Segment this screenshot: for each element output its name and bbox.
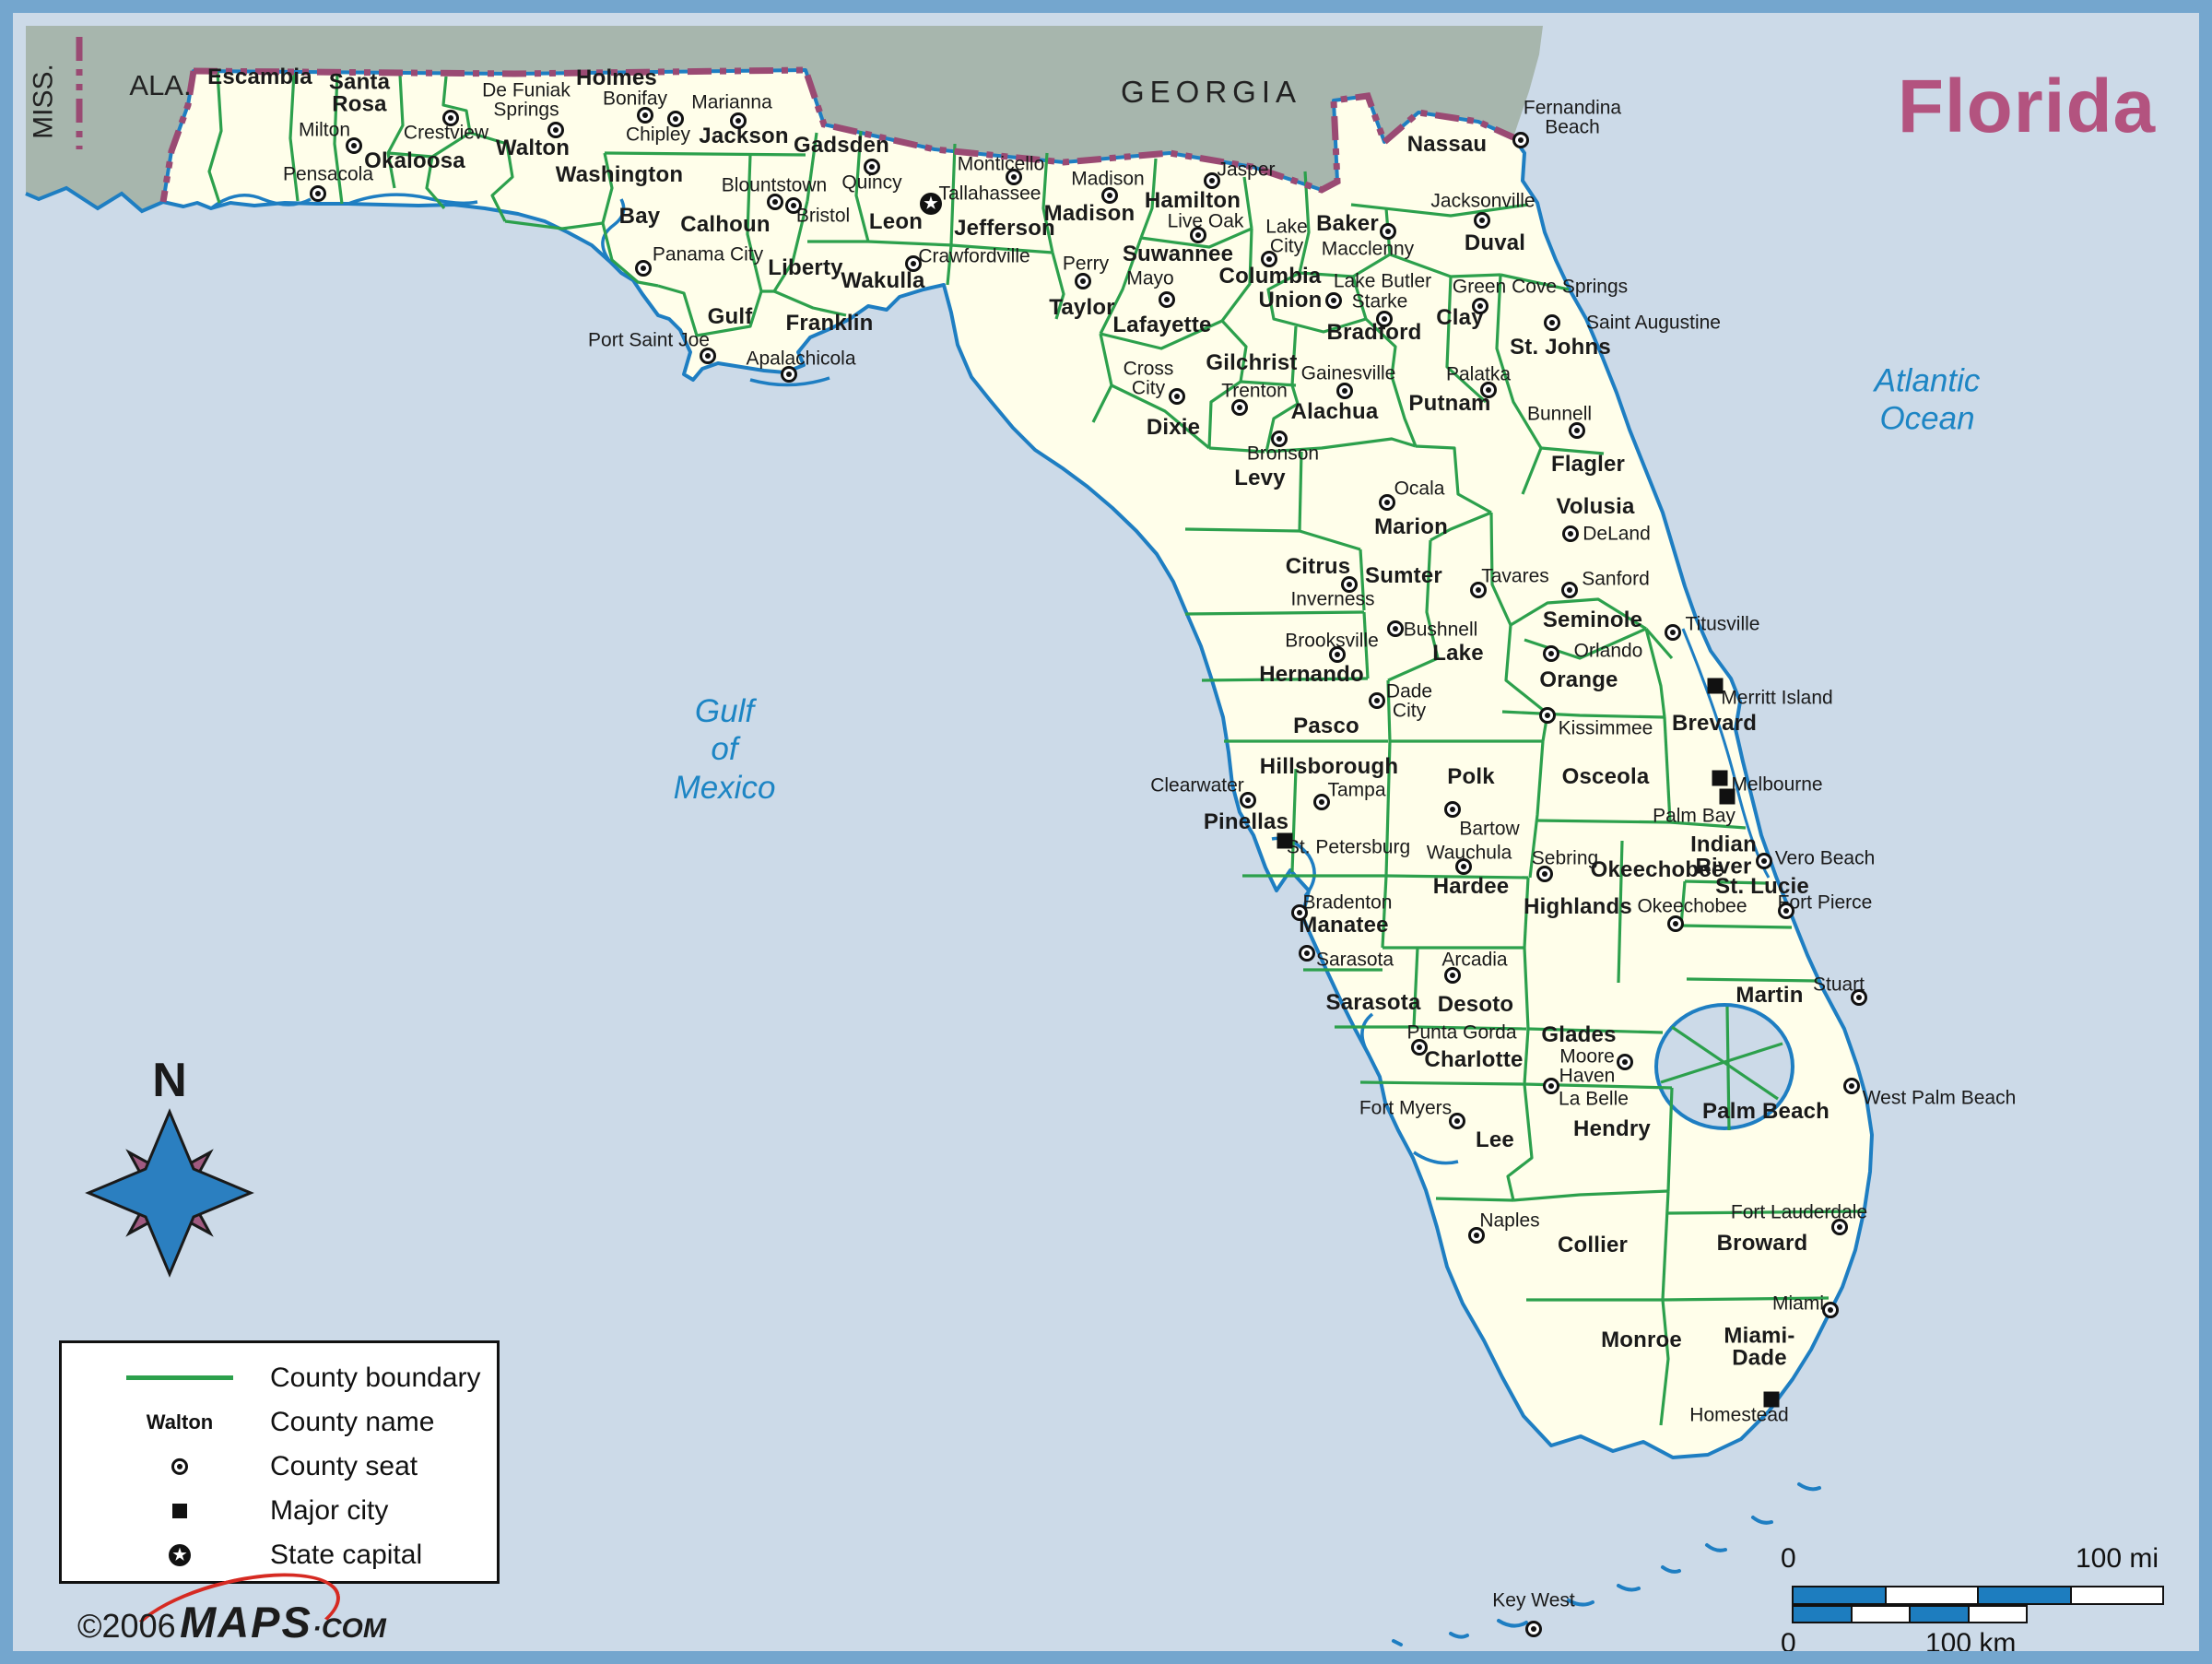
county-label-hillsborough: Hillsborough [1260, 756, 1398, 778]
state-label-georgia: GEORGIA [1121, 77, 1301, 108]
county-label-walton: Walton [496, 137, 570, 159]
city-label-west-palm-beach: West Palm Beach [1863, 1088, 2017, 1107]
city-label-fort-myers: Fort Myers [1359, 1098, 1452, 1117]
copyright-tld: ·COM [312, 1613, 386, 1644]
city-label-trenton: Trenton [1221, 381, 1288, 400]
county-seat-marker-milton [346, 137, 362, 154]
city-label-green-cove-springs: Green Cove Springs [1453, 277, 1628, 296]
county-label-bradford: Bradford [1327, 322, 1422, 344]
county-seat-marker-okeechobee [1667, 915, 1684, 932]
city-label-bonifay: Bonifay [603, 89, 667, 108]
city-label-monticello: Monticello [958, 154, 1045, 173]
county-seat-marker-kissimmee [1539, 707, 1556, 724]
city-label-perry: Perry [1063, 254, 1109, 273]
city-label-tavares: Tavares [1481, 566, 1549, 585]
county-label-indian-river: Indian River [1690, 834, 1757, 879]
county-seat-marker-live-oak [1190, 227, 1206, 243]
county-seat-marker-titusville [1665, 624, 1681, 641]
county-seat-marker-crawfordville [905, 255, 922, 272]
city-label-palatka: Palatka [1446, 364, 1511, 384]
city-label-key-west: Key West [1492, 1590, 1574, 1610]
scale-km-label: 100 km [1925, 1628, 2016, 1659]
city-label-jasper: Jasper [1217, 159, 1275, 179]
county-seat-marker-perry [1075, 273, 1091, 289]
legend-label: County seat [270, 1451, 418, 1482]
county-seat-marker-key-west [1525, 1621, 1542, 1637]
scale-mi-label: 100 mi [2076, 1543, 2159, 1575]
county-seat-marker-fort-lauderdale [1831, 1219, 1848, 1235]
county-label-baker: Baker [1316, 213, 1379, 235]
city-label-ocala: Ocala [1394, 478, 1445, 498]
county-seat-marker-trenton [1231, 399, 1248, 416]
county-seat-marker-vero-beach [1756, 853, 1772, 869]
county-seat-marker-apalachicola [781, 366, 797, 383]
county-label-monroe: Monroe [1601, 1329, 1682, 1351]
county-label-st-johns: St. Johns [1510, 336, 1611, 359]
county-seat-marker-saint-augustine [1544, 314, 1560, 331]
county-seat-icon [171, 1458, 188, 1475]
county-seat-marker-madison [1101, 187, 1118, 204]
city-label-inverness: Inverness [1290, 589, 1374, 608]
major-city-marker-merritt-island [1708, 679, 1724, 694]
county-label-broward: Broward [1717, 1233, 1808, 1255]
county-label-lafayette: Lafayette [1112, 314, 1211, 336]
city-label-live-oak: Live Oak [1168, 211, 1244, 230]
county-label-nassau: Nassau [1407, 134, 1488, 156]
city-label-sanford: Sanford [1582, 569, 1650, 588]
legend-label: State capital [270, 1540, 422, 1571]
city-label-macclenny: Macclenny [1322, 239, 1414, 258]
county-seat-marker-mayo [1159, 291, 1175, 308]
county-label-charlotte: Charlotte [1424, 1049, 1523, 1071]
county-label-gilchrist: Gilchrist [1206, 352, 1297, 374]
county-label-glades: Glades [1541, 1024, 1616, 1046]
city-label-titusville: Titusville [1686, 614, 1760, 633]
county-name-sample: Walton [117, 1410, 242, 1434]
city-label-tampa: Tampa [1327, 780, 1385, 799]
county-seat-marker-moore-haven [1617, 1054, 1633, 1070]
county-label-citrus: Citrus [1286, 556, 1351, 578]
county-label-osceola: Osceola [1562, 766, 1650, 788]
county-seat-marker-clearwater [1240, 792, 1256, 808]
county-seat-marker-jacksonville [1474, 212, 1490, 229]
county-label-collier: Collier [1558, 1234, 1628, 1257]
city-label-melbourne: Melbourne [1731, 774, 1822, 794]
city-label-saint-augustine: Saint Augustine [1586, 313, 1721, 332]
city-label-miami: Miami [1772, 1293, 1824, 1313]
county-seat-marker-blountstown [767, 194, 783, 210]
legend-row-county-boundary: County boundary [62, 1360, 497, 1397]
county-label-volusia: Volusia [1557, 496, 1635, 518]
county-seat-marker-fernandina-beach [1512, 132, 1529, 148]
county-label-martin: Martin [1735, 985, 1803, 1007]
major-city-marker-melbourne [1712, 771, 1728, 786]
county-seat-marker-panama-city [635, 260, 652, 277]
county-label-highlands: Highlands [1524, 896, 1632, 918]
county-seat-marker-sebring [1536, 866, 1553, 882]
florida-keys [1394, 1484, 1819, 1645]
county-seat-marker-cross-city [1169, 388, 1185, 405]
city-label-homestead: Homestead [1689, 1405, 1788, 1424]
city-label-apalachicola: Apalachicola [746, 348, 855, 368]
city-label-blountstown: Blountstown [722, 175, 827, 195]
scale-bar-miles [1792, 1586, 2164, 1605]
city-label-bunnell: Bunnell [1527, 404, 1592, 423]
scale-bar-km [1792, 1605, 2028, 1623]
county-seat-marker-stuart [1851, 989, 1867, 1006]
compass-north-label: N [152, 1053, 187, 1108]
county-seat-marker-ocala [1379, 494, 1395, 511]
city-label-la-belle: La Belle [1559, 1089, 1629, 1108]
major-city-marker-homestead [1764, 1392, 1780, 1408]
county-seat-marker-punta-gorda [1411, 1039, 1428, 1056]
city-label-fernandina-beach: Fernandina Beach [1524, 99, 1621, 138]
compass-rose-star [88, 1112, 251, 1274]
county-seat-marker-fort-myers [1449, 1113, 1465, 1129]
county-label-columbia: Columbia [1219, 266, 1322, 288]
county-label-taylor: Taylor [1049, 297, 1114, 319]
map-title: Florida [1865, 64, 2188, 150]
county-label-calhoun: Calhoun [680, 214, 770, 236]
county-seat-marker-de-funiak-springs [547, 122, 564, 138]
county-label-lake: Lake [1432, 643, 1484, 665]
county-seat-marker-fort-pierce [1778, 903, 1794, 919]
city-label-de-funiak-springs: De Funiak Springs [482, 81, 571, 121]
city-label-marianna: Marianna [691, 92, 772, 112]
county-label-dixie: Dixie [1147, 417, 1200, 439]
county-label-leon: Leon [869, 211, 923, 233]
city-label-pensacola: Pensacola [283, 164, 373, 183]
county-seat-marker-wauchula [1455, 858, 1472, 875]
county-seat-marker-tavares [1470, 582, 1487, 598]
city-label-bartow: Bartow [1459, 819, 1519, 838]
county-seat-marker-arcadia [1444, 967, 1461, 984]
county-seat-marker-gainesville [1336, 383, 1353, 399]
city-label-merritt-island: Merritt Island [1721, 688, 1832, 707]
water-label-atlantic: Atlantic Ocean [1875, 362, 1981, 439]
county-seat-marker-bunnell [1569, 422, 1585, 439]
county-seat-marker-quincy [864, 159, 880, 175]
county-label-bay: Bay [619, 206, 661, 228]
county-seat-marker-palatka [1480, 382, 1497, 398]
legend: County boundary Walton County name Count… [59, 1340, 500, 1584]
county-seat-marker-tampa [1313, 794, 1330, 810]
county-label-franklin: Franklin [786, 313, 874, 335]
county-label-madison: Madison [1044, 203, 1135, 225]
legend-row-state-capital: ★ State capital [62, 1537, 497, 1574]
water-label-gulf: Gulf of Mexico [674, 692, 776, 807]
copyright: ©2006 MAPS·COM [77, 1597, 386, 1647]
county-label-pinellas: Pinellas [1204, 811, 1288, 833]
legend-label: County boundary [270, 1363, 481, 1394]
county-label-seminole: Seminole [1543, 609, 1642, 631]
county-label-wakulla: Wakulla [841, 270, 924, 292]
scale-mi-zero: 0 [1781, 1543, 1796, 1575]
city-label-mayo: Mayo [1126, 268, 1173, 288]
city-label-clearwater: Clearwater [1150, 775, 1244, 795]
county-seat-marker-chipley [667, 111, 684, 127]
county-label-alachua: Alachua [1291, 401, 1379, 423]
county-seat-marker-bushnell [1387, 620, 1404, 637]
legend-row-county-name: Walton County name [62, 1404, 497, 1441]
city-label-naples: Naples [1479, 1210, 1539, 1230]
county-seat-marker-bradenton [1291, 904, 1308, 921]
city-label-gainesville: Gainesville [1301, 363, 1396, 383]
county-label-holmes: Holmes [576, 67, 657, 89]
county-label-escambia: Escambia [207, 66, 312, 89]
state-label-miss-: MISS. [30, 64, 59, 139]
county-seat-marker-inverness [1341, 576, 1358, 593]
county-seat-marker-brooksville [1329, 646, 1346, 663]
county-label-santa-rosa: Santa Rosa [329, 72, 390, 117]
copyright-year: ©2006 [77, 1607, 176, 1645]
county-seat-marker-lake-butler [1325, 292, 1342, 309]
county-seat-marker-crestview [442, 110, 459, 126]
county-seat-marker-la-belle [1543, 1078, 1559, 1094]
county-seat-marker-bartow [1444, 801, 1461, 818]
county-seat-marker-orlando [1543, 645, 1559, 662]
major-city-icon [172, 1504, 187, 1518]
state-capital-marker-tallahassee: ★ [920, 193, 942, 215]
county-label-levy: Levy [1234, 467, 1286, 490]
city-label-orlando: Orlando [1574, 641, 1643, 660]
county-label-hardee: Hardee [1433, 876, 1510, 898]
county-label-duval: Duval [1465, 232, 1525, 254]
city-label-bradenton: Bradenton [1303, 892, 1393, 912]
city-label-bronson: Bronson [1247, 443, 1319, 463]
county-seat-marker-sarasota [1299, 945, 1315, 962]
county-seat-marker-bristol [785, 197, 802, 214]
county-seat-marker-pensacola [310, 185, 326, 202]
city-label-dade-city: Dade City [1386, 682, 1432, 722]
county-label-washington: Washington [556, 164, 683, 186]
city-label-starke: Starke [1352, 291, 1408, 311]
county-label-manatee: Manatee [1299, 915, 1388, 937]
county-label-palm-beach: Palm Beach [1702, 1101, 1830, 1123]
legend-row-major-city: Major city [62, 1493, 497, 1529]
city-label-crawfordville: Crawfordville [918, 246, 1030, 266]
county-seat-marker-bronson [1271, 431, 1288, 447]
county-label-jefferson: Jefferson [954, 218, 1055, 240]
county-label-union: Union [1259, 289, 1323, 312]
city-label-fort-lauderdale: Fort Lauderdale [1731, 1202, 1867, 1221]
county-label-gulf: Gulf [708, 306, 753, 328]
city-label-bristol: Bristol [796, 206, 850, 225]
scale-km-zero: 0 [1781, 1628, 1796, 1659]
city-label-quincy: Quincy [841, 172, 901, 192]
city-label-st-petersburg: St. Petersburg [1287, 837, 1410, 856]
city-label-deland: DeLand [1583, 524, 1651, 543]
county-seat-marker-lake-city [1261, 251, 1277, 267]
city-label-madison: Madison [1071, 169, 1144, 188]
county-boundary-line-sample [126, 1375, 233, 1380]
city-label-crestview: Crestview [404, 123, 488, 142]
county-label-hamilton: Hamilton [1145, 190, 1241, 212]
county-label-okaloosa: Okaloosa [364, 150, 465, 172]
county-label-polk: Polk [1447, 766, 1494, 788]
county-seat-marker-starke [1376, 311, 1393, 327]
county-label-brevard: Brevard [1672, 713, 1757, 735]
county-label-marion: Marion [1374, 516, 1448, 538]
state-capital-icon: ★ [169, 1544, 191, 1566]
county-label-liberty: Liberty [768, 257, 842, 279]
county-seat-marker-marianna [730, 112, 747, 129]
city-label-cross-city: Cross City [1124, 360, 1174, 399]
county-seat-marker-deland [1562, 525, 1579, 542]
county-label-orange: Orange [1539, 669, 1618, 691]
county-seat-marker-port-saint-joe [700, 348, 716, 364]
county-seat-marker-bonifay [637, 107, 653, 124]
state-label-ala-: ALA. [129, 71, 191, 100]
city-label-jacksonville: Jacksonville [1430, 191, 1535, 210]
city-label-kissimmee: Kissimmee [1559, 718, 1653, 738]
county-label-sarasota: Sarasota [1326, 992, 1421, 1014]
county-label-flagler: Flagler [1551, 454, 1625, 476]
city-label-port-saint-joe: Port Saint Joe [588, 330, 710, 349]
county-label-jackson: Jackson [699, 125, 788, 148]
city-label-milton: Milton [299, 120, 350, 139]
city-label-panama-city: Panama City [653, 244, 763, 264]
county-seat-marker-dade-city [1369, 692, 1385, 709]
county-seat-marker-green-cove-springs [1472, 298, 1488, 314]
county-seat-marker-west-palm-beach [1843, 1078, 1860, 1094]
county-label-lee: Lee [1476, 1129, 1514, 1151]
copyright-brand: MAPS [180, 1598, 312, 1646]
city-label-sarasota: Sarasota [1316, 950, 1394, 969]
legend-label: Major city [270, 1495, 388, 1527]
county-seat-marker-macclenny [1380, 223, 1396, 240]
county-label-desoto: Desoto [1438, 994, 1514, 1016]
city-label-bushnell: Bushnell [1404, 620, 1478, 639]
county-label-suwannee: Suwannee [1123, 243, 1233, 266]
county-seat-marker-jasper [1204, 172, 1220, 189]
major-city-marker-st-petersburg [1277, 833, 1293, 849]
county-seat-marker-naples [1468, 1227, 1485, 1244]
county-seat-marker-sanford [1561, 582, 1578, 598]
city-label-vero-beach: Vero Beach [1775, 848, 1876, 867]
city-label-moore-haven: Moore Haven [1559, 1047, 1616, 1087]
legend-row-county-seat: County seat [62, 1448, 497, 1485]
county-label-sumter: Sumter [1365, 565, 1442, 587]
county-seat-marker-miami [1822, 1302, 1839, 1318]
city-label-chipley: Chipley [626, 124, 690, 144]
major-city-marker-palm-bay [1720, 789, 1735, 805]
county-label-hendry: Hendry [1573, 1118, 1651, 1140]
county-label-putnam: Putnam [1408, 393, 1490, 415]
legend-label: County name [270, 1407, 434, 1438]
county-label-gadsden: Gadsden [794, 135, 889, 157]
county-label-pasco: Pasco [1293, 715, 1359, 738]
florida-county-map: MISS.ALA.GEORGIAGulf of MexicoAtlantic O… [0, 0, 2212, 1664]
city-label-palm-bay: Palm Bay [1653, 806, 1735, 825]
city-label-okeechobee: Okeechobee [1637, 896, 1747, 915]
city-label-tallahassee: Tallahassee [939, 183, 1041, 203]
county-label-miami-dade: Miami- Dade [1724, 1326, 1794, 1371]
county-label-hernando: Hernando [1259, 664, 1364, 686]
city-label-lake-butler: Lake Butler [1334, 271, 1431, 290]
